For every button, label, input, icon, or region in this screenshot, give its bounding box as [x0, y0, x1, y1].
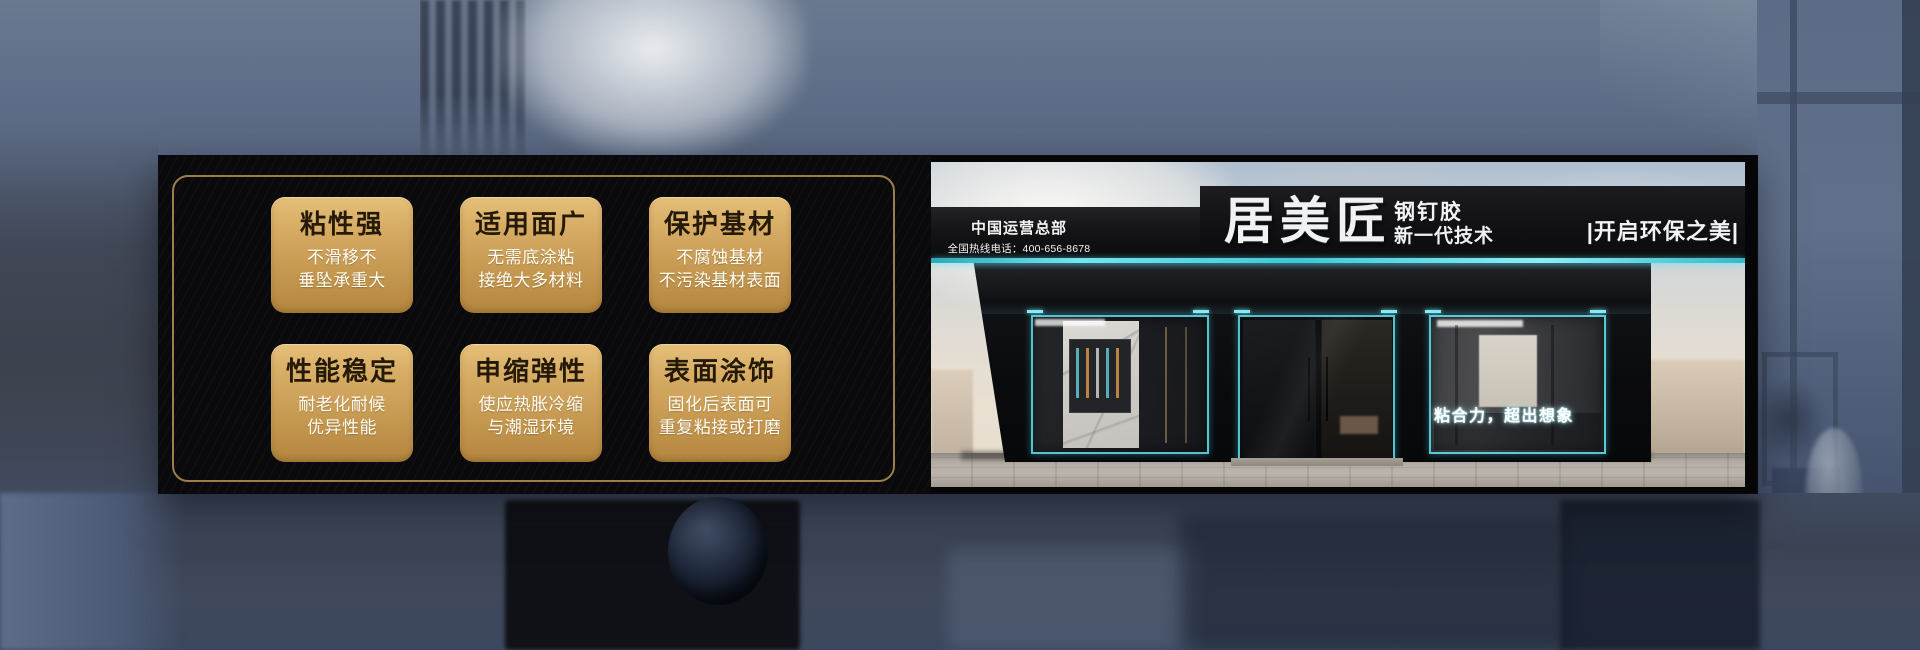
led-strip [931, 258, 1745, 263]
feature-card-stable: 性能稳定 耐老化耐候 优异性能 [271, 344, 413, 462]
led-corner-tick [1425, 310, 1441, 313]
ceiling-light [1035, 319, 1105, 326]
bg-table-blur [948, 548, 1198, 650]
shelf-frame [1165, 327, 1167, 443]
feature-line: 重复粘接或打磨 [659, 416, 782, 439]
bg-sphere-object [668, 497, 768, 605]
led-corner-tick [1590, 310, 1606, 313]
door-threshold [1231, 458, 1403, 466]
interior-wall-panel [1479, 335, 1537, 407]
feature-line: 与潮湿环境 [487, 416, 575, 439]
hq-sign-text: 中国运营总部 全国热线电话：400-656-8678 [931, 221, 1107, 256]
feature-title: 表面涂饰 [664, 358, 776, 384]
shop-window-left [1031, 315, 1209, 454]
promo-banner[interactable]: 粘性强 不滑移不 垂坠承重大 适用面广 无需底涂粘 接绝大多材料 保护基材 不腐… [159, 156, 1757, 493]
eco-slogan: |开启环保之美| [1587, 221, 1739, 243]
feature-title: 申缩弹性 [475, 358, 587, 384]
hq-sign-board: 中国运营总部 全国热线电话：400-656-8678 [931, 207, 1201, 258]
bg-window-crossbar [1757, 92, 1920, 104]
product-tagline: 新一代技术 [1394, 227, 1494, 246]
brand-name: 居美匠 [1224, 196, 1392, 246]
canopy-shade [959, 258, 1651, 314]
glass-entrance-door [1238, 315, 1395, 461]
feature-title: 适用面广 [475, 211, 587, 237]
ground-left [931, 370, 973, 460]
hq-label: 中国运营总部 [931, 221, 1107, 238]
feature-title: 性能稳定 [286, 358, 398, 384]
led-corner-tick [1027, 310, 1043, 313]
feature-line: 无需底涂粘 [487, 246, 575, 269]
feature-card-adhesion: 粘性强 不滑移不 垂坠承重大 [271, 197, 413, 313]
ceiling-light [1437, 320, 1523, 327]
page-background: 粘性强 不滑移不 垂坠承重大 适用面广 无需底涂粘 接绝大多材料 保护基材 不腐… [0, 0, 1920, 650]
feature-card-paintable: 表面涂饰 固化后表面可 重复粘接或打磨 [649, 344, 791, 462]
shop-window-right: 粘合力，超出想象 [1429, 315, 1606, 454]
bg-white-blur-shape [498, 0, 808, 158]
bg-floor-light-path [0, 493, 185, 650]
feature-line: 固化后表面可 [668, 393, 773, 416]
bg-cabinet [1560, 500, 1760, 650]
feature-line: 不污染基材表面 [659, 269, 782, 292]
feature-card-wide-use: 适用面广 无需底涂粘 接绝大多材料 [460, 197, 602, 313]
product-display-board [1069, 339, 1131, 413]
feature-line: 不滑移不 [307, 246, 377, 269]
bg-furniture-shadow [1180, 515, 1570, 650]
hotline-number: 全国热线电话：400-656-8678 [931, 241, 1107, 256]
feature-title: 保护基材 [664, 211, 776, 237]
product-name: 钢钉胶 [1394, 202, 1463, 223]
product-display-items [1076, 348, 1122, 398]
window-slogan: 粘合力，超出想象 [1434, 409, 1607, 425]
feature-line: 耐老化耐候 [298, 393, 386, 416]
feature-line: 垂坠承重大 [298, 269, 386, 292]
led-corner-tick [1234, 310, 1250, 313]
feature-line: 不腐蚀基材 [676, 246, 764, 269]
feature-line: 使应热胀冷缩 [479, 393, 584, 416]
glass-reflection [1240, 317, 1393, 459]
feature-card-elastic: 申缩弹性 使应热胀冷缩 与潮湿环境 [460, 344, 602, 462]
feature-line: 接绝大多材料 [479, 269, 584, 292]
feature-card-grid: 粘性强 不滑移不 垂坠承重大 适用面广 无需底涂粘 接绝大多材料 保护基材 不腐… [271, 197, 791, 462]
feature-title: 粘性强 [300, 211, 384, 237]
shelf-frame [1185, 327, 1187, 443]
features-panel: 粘性强 不滑移不 垂坠承重大 适用面广 无需底涂粘 接绝大多材料 保护基材 不腐… [159, 156, 931, 493]
feature-line: 优异性能 [307, 416, 377, 439]
brand-sign-board: 居美匠 钢钉胶 新一代技术 |开启环保之美| [1200, 186, 1745, 258]
led-corner-tick [1381, 310, 1397, 313]
bg-left-wall-shade [0, 128, 159, 528]
feature-card-protect: 保护基材 不腐蚀基材 不污染基材表面 [649, 197, 791, 313]
storefront-photo: 中国运营总部 全国热线电话：400-656-8678 居美匠 钢钉胶 新一代技术… [931, 162, 1745, 487]
led-corner-tick [1193, 310, 1209, 313]
